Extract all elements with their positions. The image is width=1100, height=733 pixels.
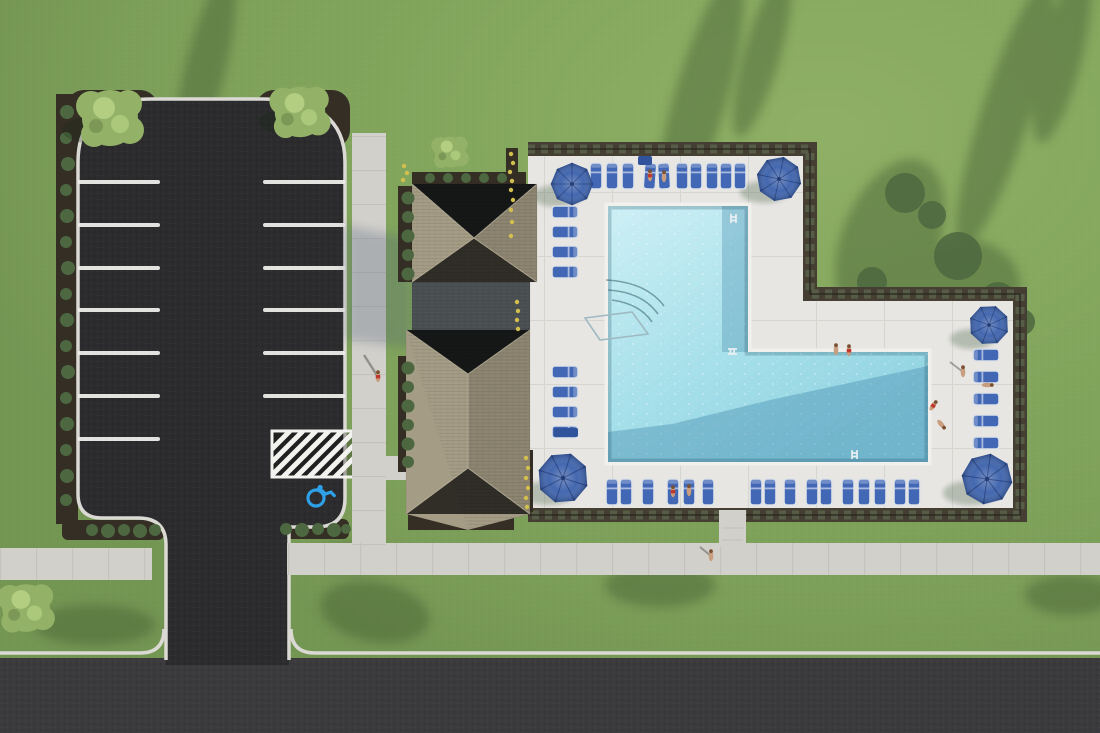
side-table xyxy=(638,156,652,165)
person-on-lounger xyxy=(982,383,994,388)
east-wall-shadow xyxy=(722,206,748,352)
side-table xyxy=(554,428,578,437)
person-on-lounger xyxy=(687,484,692,496)
clubhouse xyxy=(398,148,540,535)
aerial-rendering xyxy=(0,0,1100,733)
person-at-pool-edge xyxy=(847,344,852,356)
person-at-pool-edge xyxy=(834,343,839,355)
tree xyxy=(431,137,468,168)
patio-umbrella xyxy=(551,163,594,206)
pool-entry-walk xyxy=(719,510,746,547)
person-on-lounger xyxy=(648,169,653,181)
tree xyxy=(269,87,330,138)
lounger-row-top xyxy=(590,162,747,190)
tree xyxy=(76,90,144,147)
clubhouse-roof xyxy=(400,180,540,535)
person-on-lounger xyxy=(662,170,667,182)
person-on-lounger xyxy=(671,485,676,497)
tree xyxy=(0,584,55,632)
